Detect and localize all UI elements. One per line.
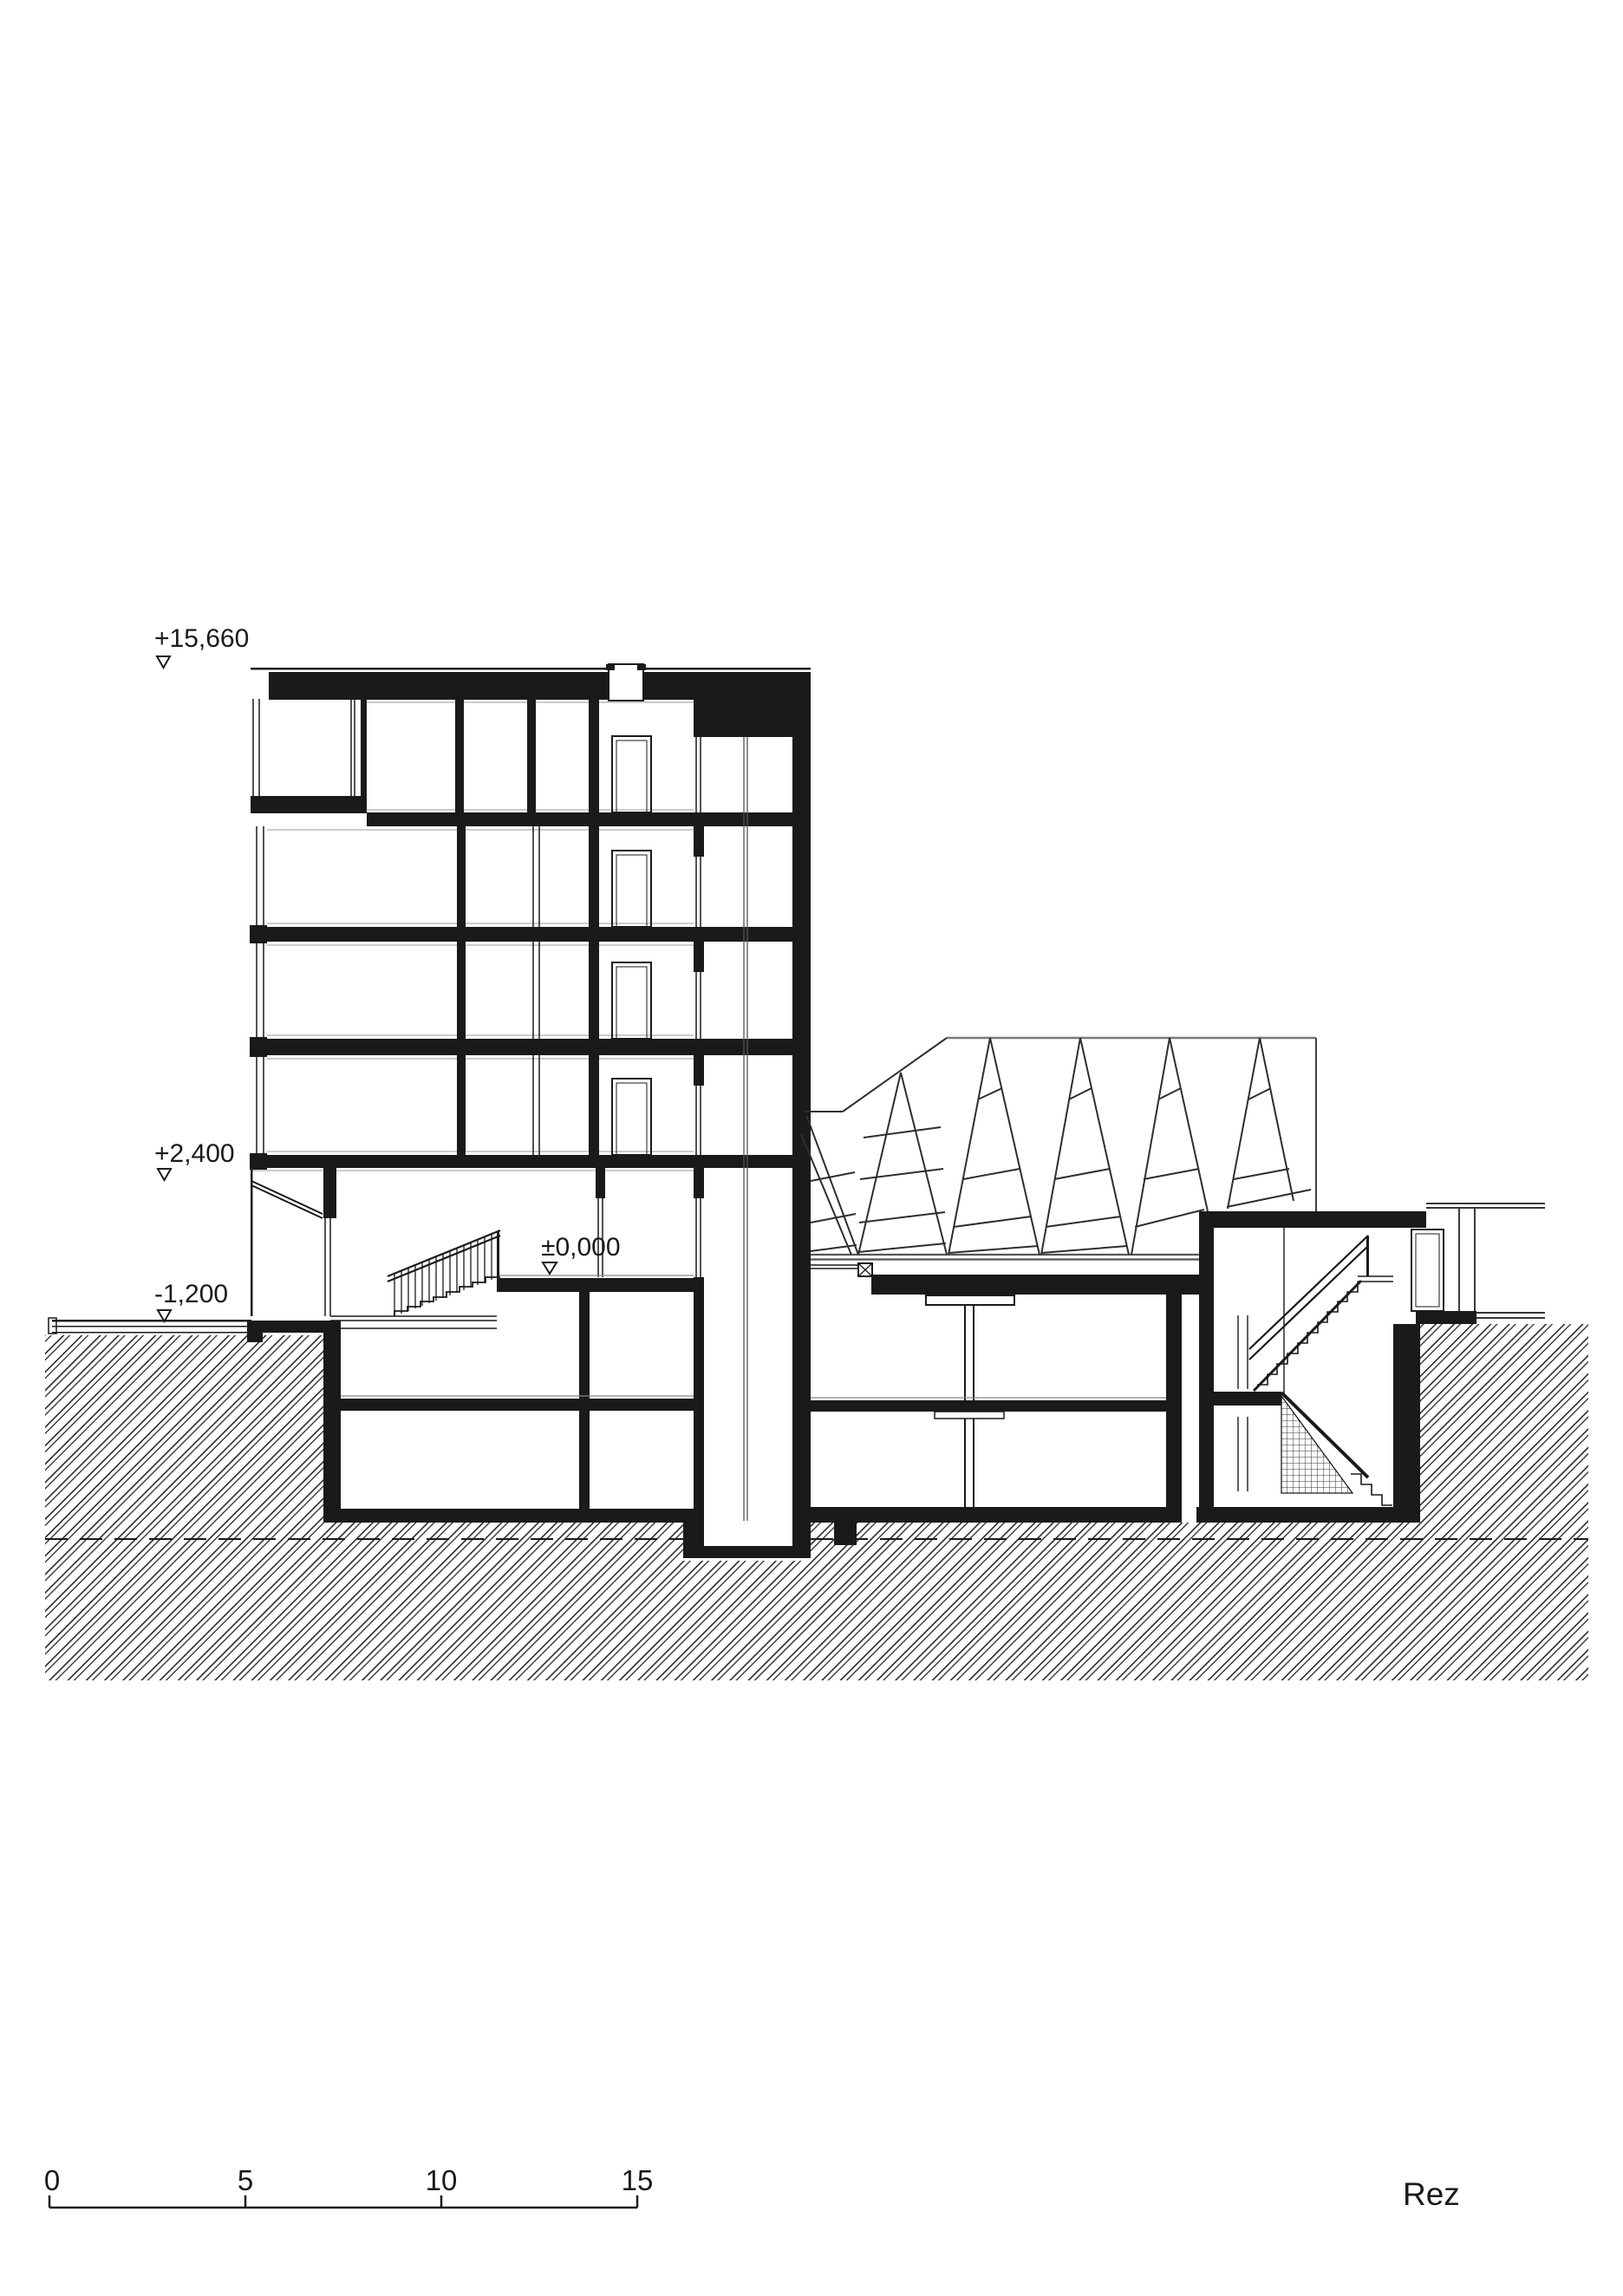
retaining-wall	[323, 1333, 341, 1523]
annex-mid-landing-slab	[1199, 1392, 1281, 1406]
level-marker-icon	[157, 656, 170, 668]
partition-door	[533, 1055, 539, 1155]
hall-column	[965, 1305, 974, 1400]
annex-canopy	[1426, 1203, 1545, 1208]
ground-floor	[247, 1168, 704, 1342]
street-sidewalk-left	[49, 1318, 251, 1334]
elevator-shaft	[694, 700, 811, 1558]
stair-stringer	[1254, 1281, 1361, 1391]
annex-left-wall	[1199, 1211, 1214, 1523]
level-marker-icon	[543, 1262, 557, 1274]
section-drawing-sheet: +15,660 +2,400 -1,200 ±0,000 0 5 10 15 R…	[0, 0, 1623, 2296]
annex-entrance-door	[1411, 1230, 1444, 1311]
stair-handrail	[1249, 1236, 1368, 1360]
partition-stub	[596, 1168, 605, 1198]
elevator-guide-rail	[744, 737, 747, 1546]
shaft-door	[696, 972, 701, 1039]
interior-wall	[457, 942, 466, 1039]
scale-label-5: 5	[238, 2164, 253, 2196]
truss-3	[1041, 1038, 1129, 1255]
shaft-wall-stub	[694, 1055, 704, 1086]
stair-balusters	[394, 1234, 492, 1316]
sidewalk-line	[52, 1320, 251, 1322]
stair-handrail	[388, 1230, 500, 1282]
elevation-label-ground-floor: ±0,000	[541, 1233, 621, 1262]
hall-column-lower	[965, 1419, 974, 1507]
annex-entrance-door-leaf	[1416, 1234, 1439, 1307]
column-capital	[926, 1295, 1014, 1305]
facade-window	[257, 826, 264, 927]
partition-door	[533, 826, 539, 927]
scale-label-10: 10	[426, 2164, 458, 2196]
foundation-slab	[323, 1509, 694, 1523]
elevation-markers: +15,660 +2,400 -1,200 ±0,000	[154, 624, 621, 1321]
hall-foundation-slab	[811, 1507, 1166, 1523]
interior-wall	[589, 942, 599, 1039]
room-door-leaf	[616, 740, 647, 812]
scale-bar-line	[49, 2195, 637, 2208]
annex-right-wall	[1393, 1324, 1420, 1523]
terrace-floor-slab	[251, 796, 367, 813]
floor-2	[250, 1055, 704, 1170]
scale-bar: 0 5 10 15	[44, 2164, 654, 2208]
elevation-label-first-floor: +2,400	[154, 1139, 235, 1168]
elevation-label-roof: +15,660	[154, 624, 249, 653]
section-drawing: +15,660 +2,400 -1,200 ±0,000 0 5 10 15 R…	[0, 0, 1623, 2296]
ground-floor-slab	[497, 1278, 704, 1292]
room-door-leaf	[616, 855, 647, 927]
soil-hatch-right	[1420, 1324, 1588, 1680]
entrance-canopy	[251, 1181, 323, 1218]
elevation-label-street: -1,200	[154, 1280, 228, 1308]
mesh-guard	[1281, 1396, 1352, 1493]
room-door	[612, 962, 651, 1039]
shaft-wall-stub	[694, 700, 704, 730]
shaft-right-wall	[792, 700, 811, 1558]
drawing-title: Rez	[1403, 2176, 1460, 2212]
shaft-door	[696, 1086, 701, 1155]
hall-right-wall	[1166, 1275, 1182, 1523]
skylight-cap	[637, 664, 646, 670]
interior-wall	[589, 826, 599, 927]
sidewalk-line	[52, 1326, 251, 1327]
hall-mid-slab	[811, 1400, 1166, 1412]
scale-label-15: 15	[622, 2164, 654, 2196]
scale-label-0: 0	[44, 2164, 60, 2196]
foundation-block	[247, 1321, 263, 1342]
floor-slab	[251, 1039, 811, 1055]
lower-stair-steps	[1351, 1474, 1392, 1505]
truss-1	[858, 1073, 947, 1255]
entrance-stair-steps	[394, 1277, 500, 1316]
shaft-door	[696, 730, 701, 812]
interior-wall	[589, 1055, 599, 1155]
interior-wall	[457, 826, 466, 927]
room-door	[612, 851, 651, 927]
interior-wall	[455, 700, 464, 812]
annex-foundation-slab	[1196, 1507, 1420, 1523]
facade-window	[257, 942, 264, 1039]
basement-tower	[323, 1292, 694, 1523]
truss-left-slope	[805, 1038, 947, 1112]
stair-end-post	[1366, 1236, 1369, 1276]
annex-roof-slab	[1199, 1211, 1426, 1228]
shaft-wall-stub	[694, 942, 704, 972]
entrance-floor	[330, 1316, 497, 1328]
floor-slab	[251, 927, 811, 942]
floor-5	[251, 699, 704, 813]
facade-slab-edge	[250, 1037, 267, 1057]
interior-wall	[457, 1055, 466, 1155]
interior-wall	[589, 700, 599, 812]
facade-slab-edge	[250, 1153, 267, 1170]
canopy-support	[1459, 1209, 1475, 1311]
shaft-wall-stub	[694, 1168, 704, 1198]
truss-5	[1227, 1038, 1311, 1209]
hall-ceiling-slab	[871, 1275, 1199, 1295]
basement-floor-slab	[341, 1399, 694, 1411]
facade-slab-edge	[250, 925, 267, 943]
truss-2	[948, 1038, 1040, 1255]
shaft-door	[696, 857, 701, 927]
floor-slab	[251, 1155, 811, 1168]
stair-landing	[1358, 1276, 1393, 1282]
truss-deck-line	[811, 1255, 1203, 1260]
column-base-plate	[935, 1412, 1004, 1419]
floor-4	[250, 826, 704, 943]
room-door-leaf	[616, 1083, 647, 1155]
soil-hatch-left	[45, 1335, 328, 1680]
annex-stair-steps	[1257, 1282, 1358, 1385]
room-door	[612, 1079, 651, 1155]
partition-door	[533, 942, 539, 1039]
terrace-glass-mullion	[361, 700, 367, 796]
shaft-door	[696, 1198, 701, 1277]
room-door-leaf	[616, 967, 647, 1039]
level-marker-icon	[158, 1169, 171, 1180]
roof-slab	[269, 672, 811, 700]
stair-end-post	[497, 1231, 499, 1277]
shaft-wall-stub	[694, 826, 704, 857]
room-door	[612, 736, 651, 812]
ground-soil-hatch	[45, 1324, 1588, 1680]
underground-hall	[811, 1255, 1203, 1523]
sidewalk-line	[52, 1332, 251, 1334]
facade-column	[251, 1168, 253, 1316]
shaft-left-wall	[694, 1277, 704, 1546]
interior-wall	[527, 700, 536, 812]
sidewalk-line-right	[1476, 1313, 1545, 1318]
entrance-glass-wall	[325, 1218, 330, 1316]
terrace-railing	[253, 699, 259, 796]
facade-window	[257, 1055, 264, 1155]
skylight-cap	[606, 664, 615, 670]
entrance-wall	[323, 1168, 336, 1218]
truss-4	[1131, 1038, 1208, 1255]
soil-hatch-under-building	[328, 1523, 1420, 1680]
roof-parapet-line	[251, 668, 811, 670]
pit-floor-slab	[683, 1546, 811, 1558]
terrace-glass-mullion	[351, 700, 355, 796]
annex-entrance-slab	[1416, 1311, 1476, 1324]
